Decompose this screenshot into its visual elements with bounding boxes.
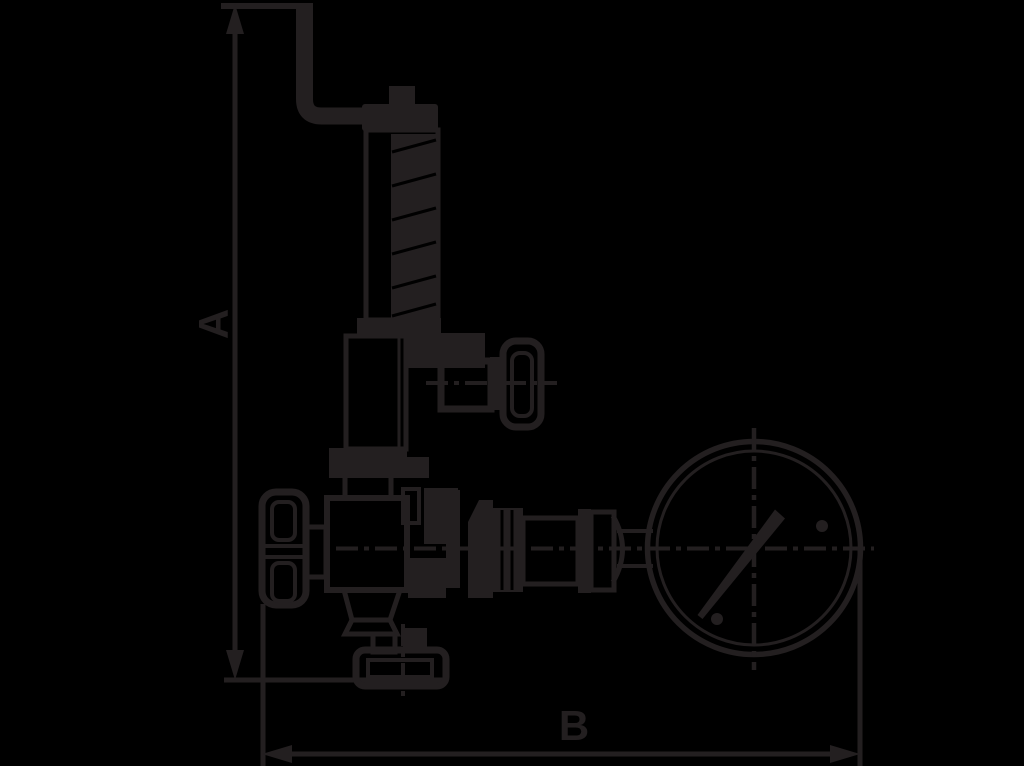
spring-bonnet	[329, 86, 441, 498]
dimension-b: B	[262, 548, 860, 766]
handwheel-spoke-top	[272, 502, 295, 540]
bonnet-flange-block	[407, 457, 429, 478]
body-funnel	[344, 590, 400, 620]
gauge-dial-dot-lower	[711, 613, 723, 625]
gauge-needle	[698, 510, 786, 620]
fitting-block-lower	[408, 558, 446, 598]
dimension-a-label: A	[190, 309, 237, 339]
spring-coil	[391, 134, 437, 320]
lower-bonnet	[346, 336, 406, 449]
technical-drawing-canvas: A B	[0, 0, 1024, 766]
arrow-right-icon	[830, 745, 860, 763]
body-shell	[327, 498, 407, 590]
valve-dimension-diagram: A B	[0, 0, 1024, 766]
top-cap	[362, 104, 438, 131]
pipe-fittings	[336, 488, 874, 598]
outlet-flange-slot	[368, 660, 432, 677]
pipe-fitting-outline	[591, 512, 614, 590]
bonnet-flange	[329, 448, 407, 478]
pipe-section	[523, 518, 578, 584]
arrow-left-icon	[262, 745, 292, 763]
handwheel-spoke-bottom	[272, 563, 295, 601]
arrow-down-icon	[226, 650, 244, 680]
handwheel-rim	[262, 492, 306, 605]
dimension-b-label: B	[559, 702, 589, 749]
fitting-bar	[446, 490, 460, 588]
handwheel	[262, 492, 326, 605]
gauge-dial-dot-right	[816, 520, 828, 532]
side-test-valve	[405, 333, 557, 427]
